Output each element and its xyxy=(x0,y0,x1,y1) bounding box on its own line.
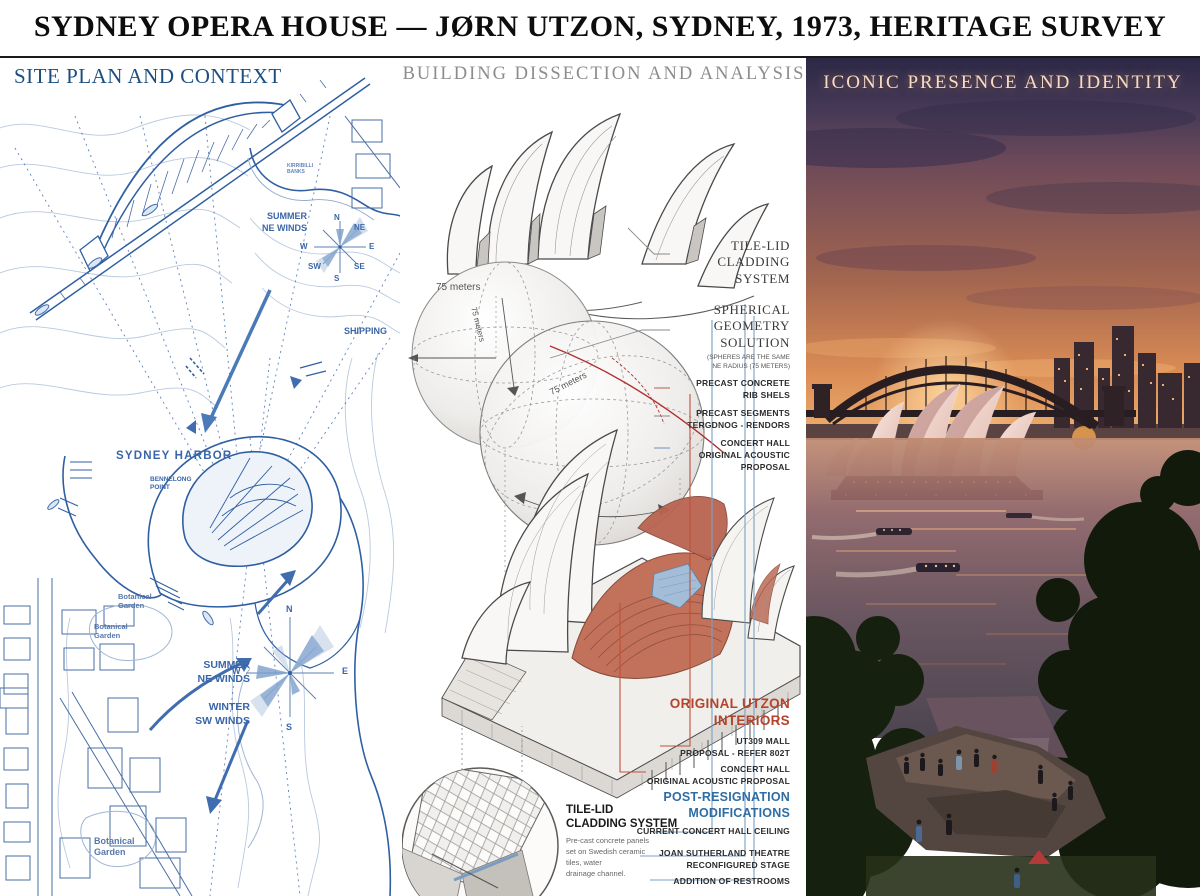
bridge-pylons xyxy=(80,100,300,271)
identity-photo-panel: ICONIC PRESENCE AND IDENTITY xyxy=(806,58,1200,896)
panel-row: SITE PLAN AND CONTEXT SUMMER NE WINDS N … xyxy=(0,58,1200,896)
harbour-bridge-drawing xyxy=(30,78,370,320)
shipping-arrow xyxy=(186,290,326,433)
opera-photo xyxy=(806,58,1200,896)
heritage-survey-poster: SYDNEY OPERA HOUSE — JØRN UTZON, SYDNEY,… xyxy=(0,0,1200,896)
dissection-panel: BUILDING DISSECTION AND ANALYSIS 75 mete… xyxy=(402,58,806,896)
site-plan-drawing xyxy=(0,58,400,896)
wind-rose-lower xyxy=(246,617,334,717)
boat-marks xyxy=(34,202,215,626)
poster-title-bar: SYDNEY OPERA HOUSE — JØRN UTZON, SYDNEY,… xyxy=(0,0,1200,58)
wind-rose-upper xyxy=(314,217,368,273)
dissection-drawing xyxy=(402,58,804,896)
opera-site-footprint xyxy=(183,452,312,567)
site-plan-panel: SITE PLAN AND CONTEXT SUMMER NE WINDS N … xyxy=(0,58,402,896)
poster-title: SYDNEY OPERA HOUSE — JØRN UTZON, SYDNEY,… xyxy=(0,0,1200,54)
